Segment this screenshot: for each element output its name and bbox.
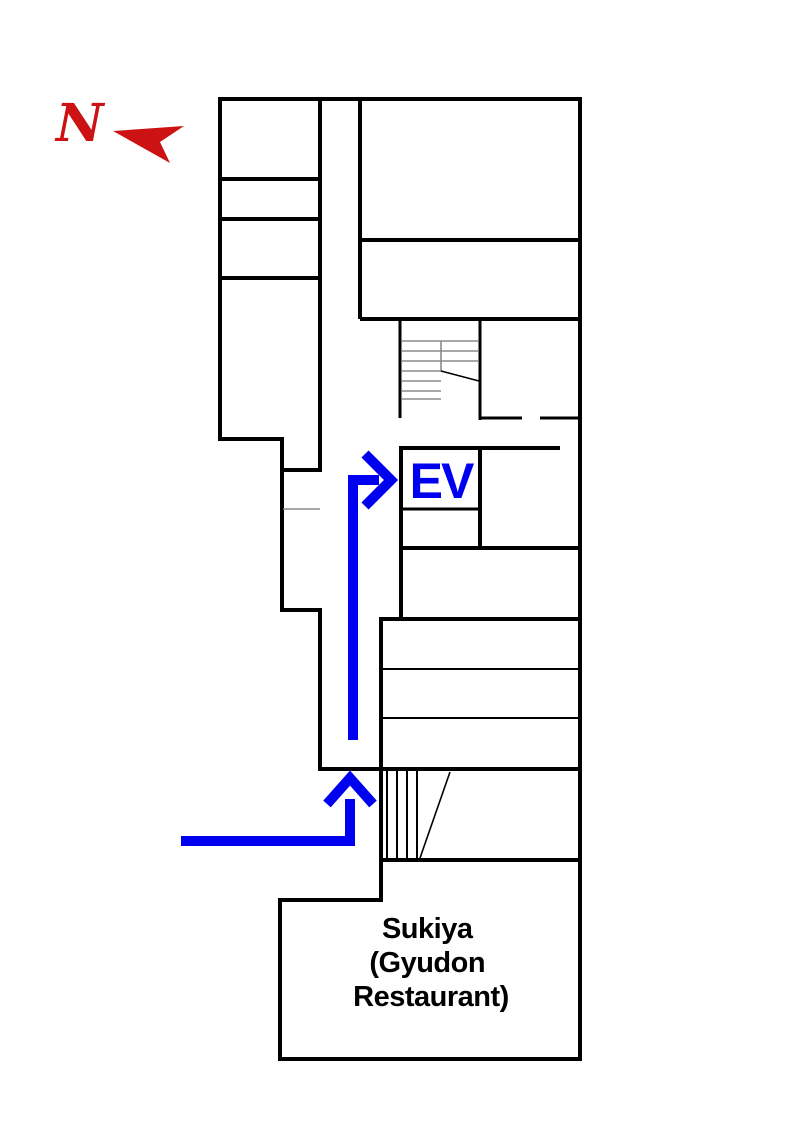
stair-break-line (420, 772, 450, 858)
restaurant-label-line: Restaurant) (353, 981, 509, 1013)
floor-plan: N EV Sukiya (Gyudon Restaurant) (0, 0, 794, 1123)
floor-plan-page: N EV Sukiya (Gyudon Restaurant) (0, 0, 794, 1123)
stair-break-line (441, 371, 479, 381)
route-entrance-segment (181, 799, 350, 841)
north-letter: N (54, 93, 106, 154)
route-path (181, 454, 391, 841)
upper-staircase (401, 341, 479, 399)
restaurant-label-line: (Gyudon (369, 947, 485, 979)
upper-staircase-break (441, 371, 479, 381)
compass: N (54, 93, 184, 163)
restaurant-label-line: Sukiya (382, 913, 474, 945)
lower-staircase (387, 771, 450, 858)
route-corridor-segment (353, 480, 379, 740)
restaurant-label: Sukiya (Gyudon Restaurant) (353, 913, 509, 1013)
north-arrow-icon (113, 126, 184, 163)
elevator-label: EV (410, 453, 475, 509)
